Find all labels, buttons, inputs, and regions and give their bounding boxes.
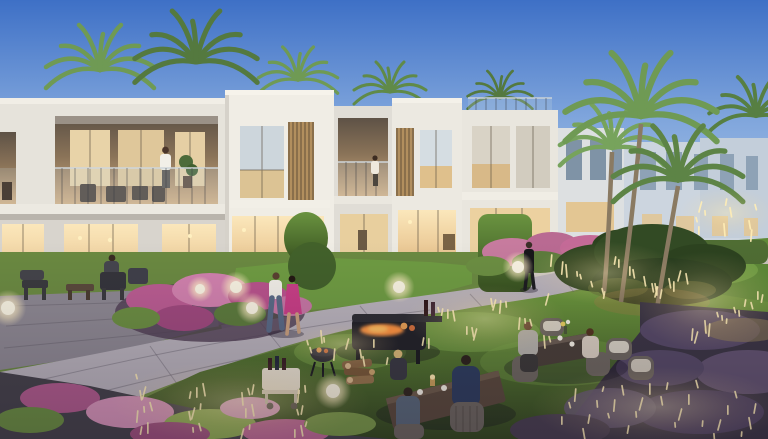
architectural-render: Modern white townhouse community at dusk…	[0, 0, 768, 439]
dusk-vignette	[0, 0, 768, 439]
render-canvas	[0, 0, 768, 439]
